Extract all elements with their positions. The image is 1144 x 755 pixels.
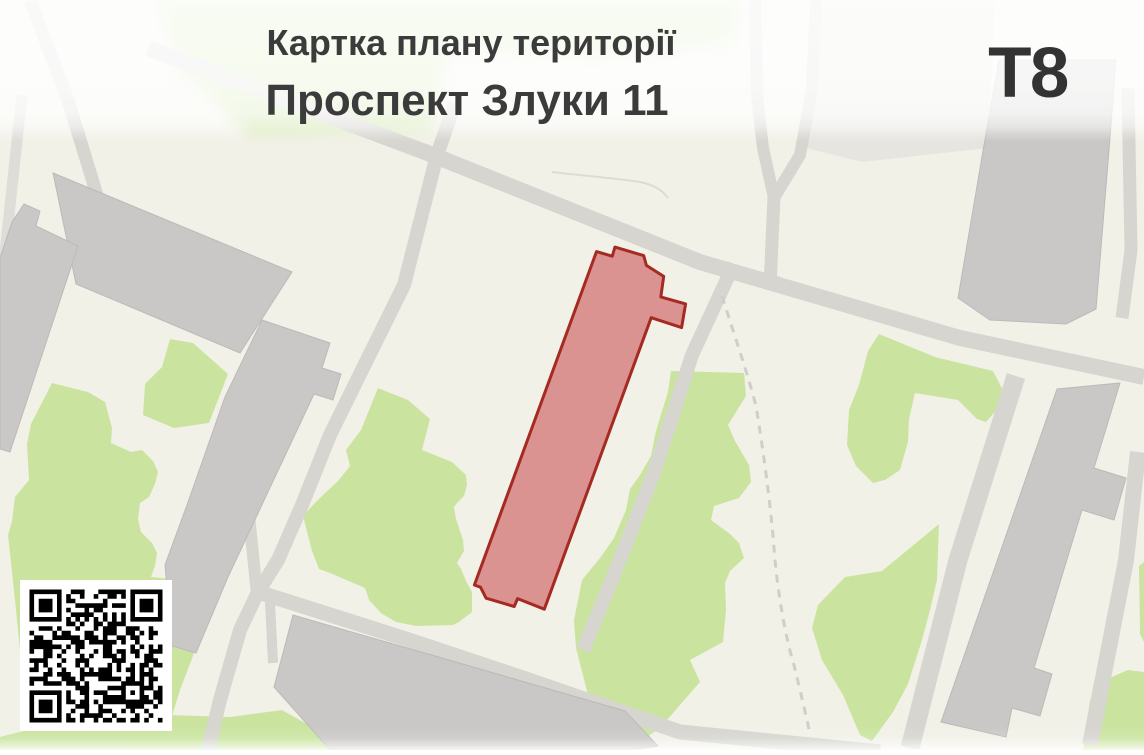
svg-text:Картка плану території: Картка плану території <box>266 22 676 63</box>
svg-text:Проспект Злуки 11: Проспект Злуки 11 <box>265 76 668 125</box>
svg-text:T8: T8 <box>988 34 1068 113</box>
